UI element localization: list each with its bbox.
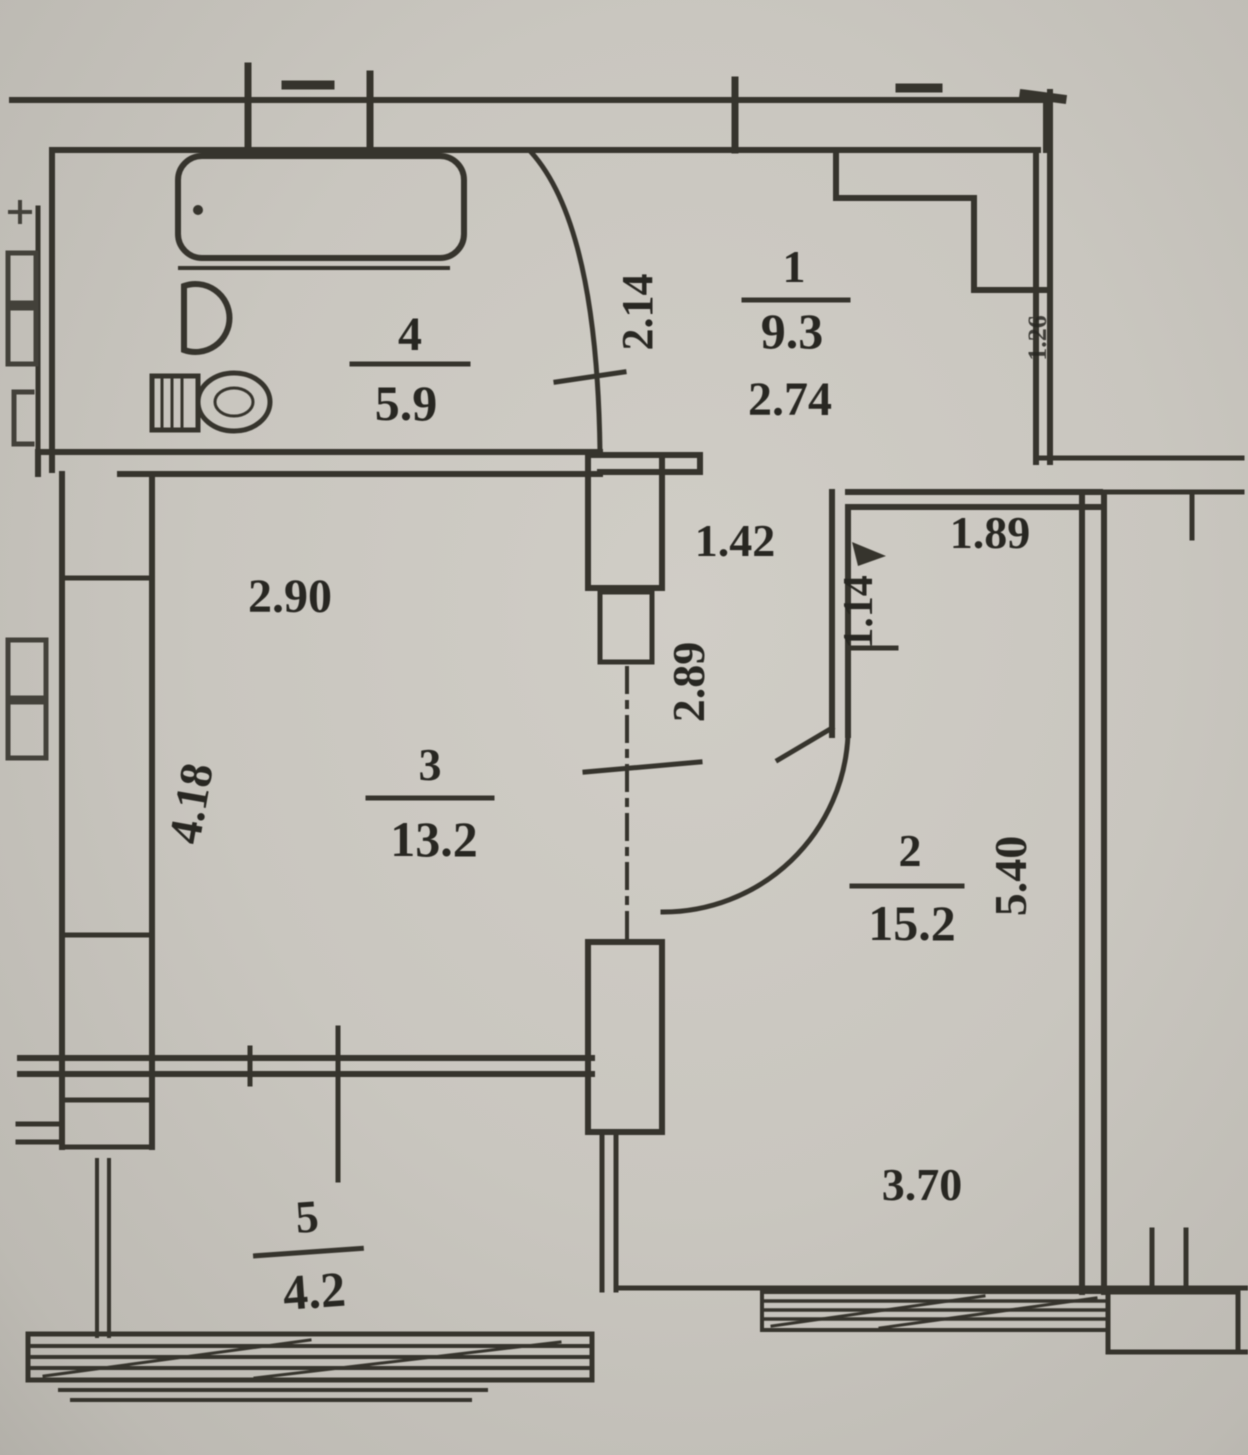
- room5-label-group: 5 4.2: [251, 1188, 366, 1323]
- corridor-tick: [585, 762, 700, 772]
- scanned-floor-plan-page: 4 5.9 1 9.3 2.74 3 13.2 2 15.2 5 4.2 2.9…: [0, 0, 1248, 1455]
- right-step-walls: [1036, 458, 1242, 538]
- living-left-wall: [62, 474, 152, 1147]
- room2-area: 15.2: [868, 895, 956, 951]
- room2-door-tick: [778, 728, 832, 760]
- room5-number: 5: [294, 1190, 321, 1242]
- sink-icon: [184, 284, 229, 352]
- dim-living-depth: 4.18: [159, 759, 223, 847]
- room5-right-wall: [602, 1132, 616, 1290]
- dim-bath-door: 2.14: [613, 274, 662, 351]
- toilet-tank-icon: [152, 376, 198, 430]
- balcony-top-wall: [20, 1058, 592, 1074]
- niche-dim-arrow: [852, 542, 886, 566]
- dim-room2-niche: 1.14: [836, 575, 882, 649]
- corridor-pillar-bottom: [588, 942, 662, 1132]
- bottom-right-wall-block: [1108, 1292, 1238, 1352]
- room2-window-hatch-band: [762, 1292, 1238, 1352]
- balcony-left-step: [18, 1124, 62, 1142]
- plus-tick: [10, 202, 30, 222]
- outer-right-lower-wall: [1152, 1230, 1186, 1292]
- entry-niche-wall: [836, 152, 1048, 290]
- bathroom-door-arc: [531, 152, 600, 452]
- room2-number: 2: [899, 825, 922, 876]
- dim-room2-width: 3.70: [882, 1159, 963, 1210]
- window-dash: [286, 85, 1062, 99]
- dim-living-width: 2.90: [248, 570, 332, 623]
- room1-number: 1: [783, 241, 806, 292]
- bracket-mark: [14, 392, 32, 444]
- bathtub-icon: [178, 156, 464, 258]
- floor-plan-drawing: 4 5.9 1 9.3 2.74 3 13.2 2 15.2 5 4.2 2.9…: [0, 0, 1248, 1455]
- toilet-bowl-icon: [198, 373, 270, 431]
- room5-area: 4.2: [281, 1261, 347, 1321]
- corridor-pillar-mid: [600, 592, 652, 662]
- balcony-hatch-band: [28, 1334, 592, 1400]
- bath-bottom-wall: [38, 452, 600, 474]
- side-dimension-illegible: 1.26: [1023, 315, 1052, 361]
- toilet-tank-hatch: [162, 376, 182, 430]
- room2-right-wall: [1082, 497, 1104, 1292]
- dim-hall-width: 2.74: [748, 373, 832, 426]
- room4-area: 5.9: [375, 375, 438, 431]
- dim-corridor-length: 2.89: [663, 642, 714, 723]
- room5-fraction-bar: [256, 1248, 362, 1255]
- living-left-wall-ties: [62, 578, 152, 1147]
- room-labels: 4 5.9 1 9.3 2.74 3 13.2 2 15.2 5 4.2: [251, 241, 962, 1323]
- bathtub-drain-dot: [193, 205, 203, 215]
- room3-area: 13.2: [390, 811, 478, 867]
- top-wall-window-ticks: [248, 66, 1062, 150]
- window-sill-box: [8, 308, 36, 364]
- dim-room2-top: 1.89: [950, 507, 1031, 558]
- window-sill-box: [8, 640, 46, 698]
- bathroom-door-tick: [556, 372, 624, 382]
- dimension-labels: 2.90 1.42 1.89 3.70 2.14 2.89 4.18 1.14 …: [159, 274, 1052, 1211]
- toilet-bowl-inner: [215, 388, 253, 416]
- room3-number: 3: [419, 739, 442, 790]
- room1-area: 9.3: [761, 303, 824, 359]
- room2-top-wall: [848, 492, 1100, 507]
- dim-room2-depth: 5.40: [985, 836, 1036, 917]
- window-sill-box: [8, 702, 46, 758]
- room4-number: 4: [398, 308, 422, 361]
- dim-corridor-opening: 1.42: [695, 515, 776, 566]
- balcony-rail-extension: [60, 1390, 486, 1400]
- balcony-left-thin-wall: [97, 1160, 109, 1336]
- window-sill-box: [8, 253, 36, 303]
- window-tick: [248, 66, 735, 150]
